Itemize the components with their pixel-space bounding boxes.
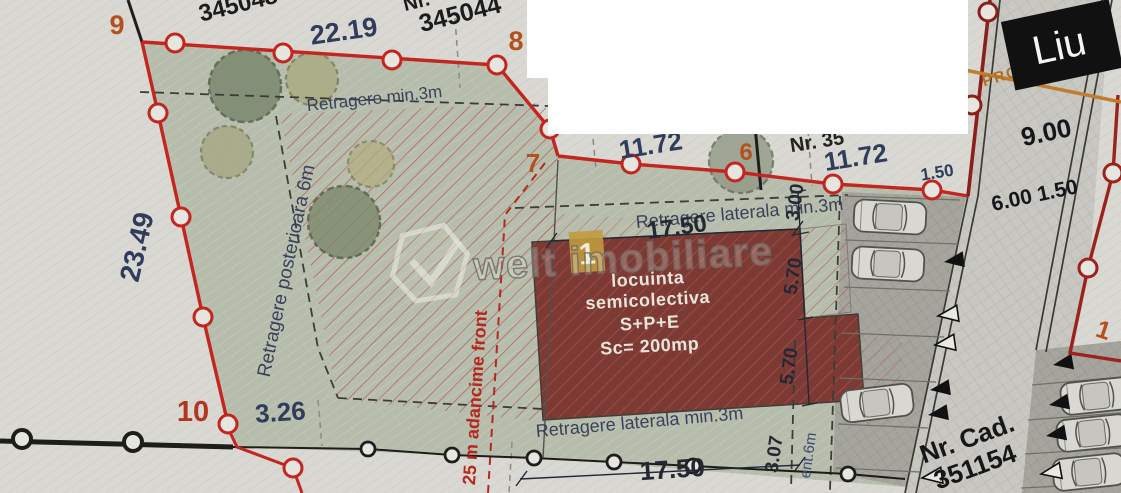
dim-building-width-bottom: 17.50 bbox=[639, 452, 706, 486]
vertex-marker-10: 10 bbox=[177, 396, 209, 428]
dim-bottom-offset: 3.26 bbox=[254, 395, 307, 428]
vertex-marker-9: 9 bbox=[109, 10, 124, 40]
site-plan: 1 345048 Nr. 345044 22.19 9 8 Retragere … bbox=[0, 0, 1121, 493]
car-icon bbox=[1052, 452, 1121, 491]
building-label-line3: S+P+E bbox=[619, 311, 680, 334]
vertex-marker-8: 8 bbox=[508, 26, 523, 56]
redaction-box-top bbox=[527, 0, 968, 78]
tree-icon bbox=[308, 186, 380, 258]
car-icon bbox=[853, 199, 927, 235]
cadastral-plan-canvas: 1 345048 Nr. 345044 22.19 9 8 Retragere … bbox=[0, 0, 1121, 493]
car-icon bbox=[851, 246, 925, 282]
vertex-marker-7: 7 bbox=[526, 148, 540, 178]
tree-icon bbox=[348, 141, 394, 187]
tree-icon bbox=[201, 126, 253, 178]
car-icon bbox=[1060, 376, 1121, 415]
building-terrace-hatch bbox=[800, 224, 851, 318]
vertex-marker-6: 6 bbox=[739, 139, 752, 166]
tree-icon bbox=[209, 50, 281, 122]
redaction-box-lower bbox=[548, 76, 968, 134]
